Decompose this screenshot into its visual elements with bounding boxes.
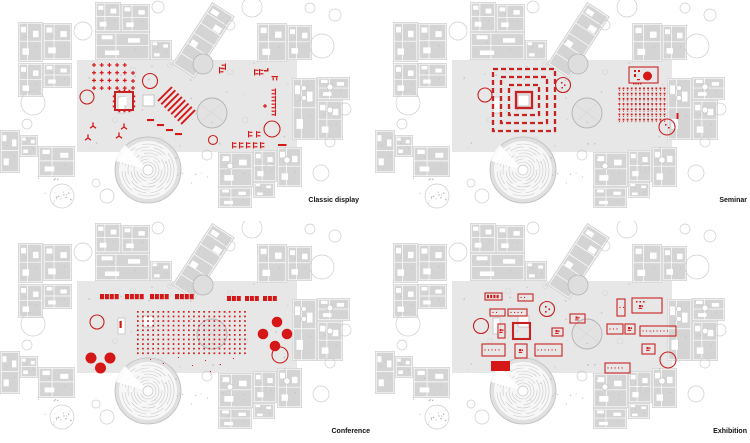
floor-plan-conference: [0, 221, 375, 443]
plan-panel-classic-display: Classic display: [0, 0, 375, 222]
plan-label-classic-display: Classic display: [308, 197, 359, 204]
floor-plan-classic-display: [0, 0, 375, 222]
plan-label-seminar: Seminar: [719, 197, 747, 204]
plan-panel-exhibition: Exhibition: [375, 221, 750, 443]
plan-panel-conference: Conference: [0, 221, 375, 443]
floor-plan-seminar: [375, 0, 750, 222]
floor-plan-scenarios: Classic display Seminar Conference Exhib…: [0, 0, 750, 443]
plan-panel-seminar: Seminar: [375, 0, 750, 222]
plan-label-conference: Conference: [331, 428, 370, 435]
plan-label-exhibition: Exhibition: [713, 428, 747, 435]
floor-plan-exhibition: [375, 221, 750, 443]
